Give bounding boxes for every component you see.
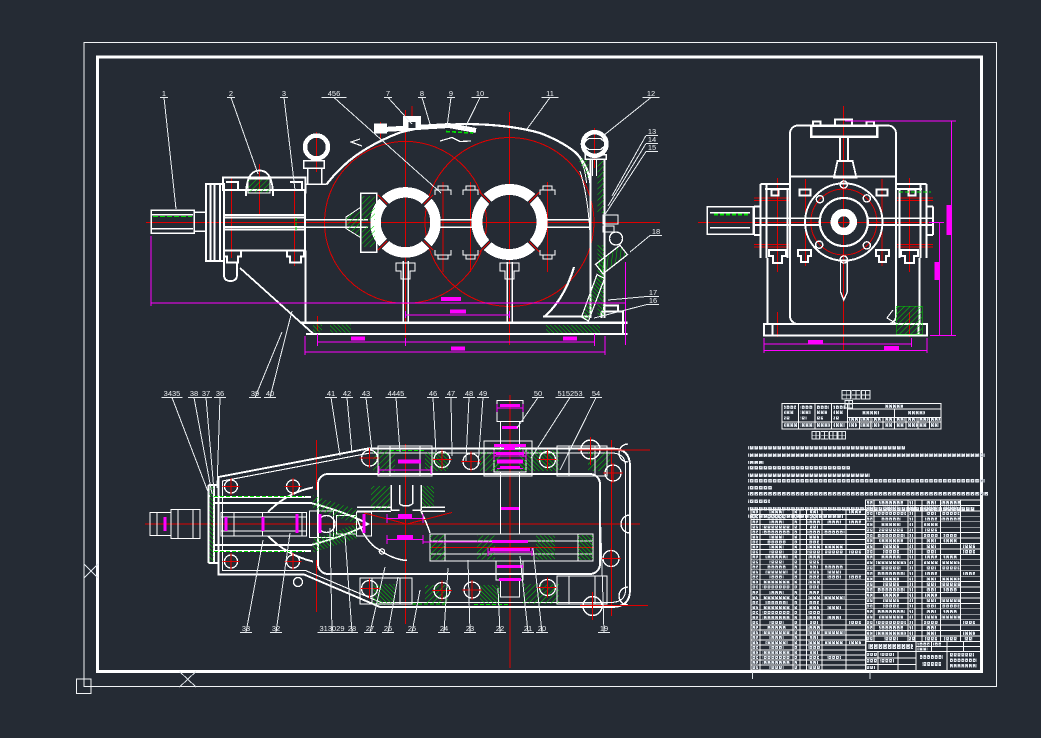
- svg-text:50: 50: [534, 389, 542, 398]
- svg-text:12: 12: [647, 89, 655, 98]
- svg-text:41: 41: [327, 389, 335, 398]
- svg-text:43: 43: [362, 389, 370, 398]
- svg-text:9: 9: [449, 89, 453, 98]
- svg-text:1: 1: [162, 89, 166, 98]
- svg-text:2: 2: [229, 89, 233, 98]
- svg-text:42: 42: [343, 389, 351, 398]
- svg-text:54: 54: [592, 389, 600, 398]
- svg-text:38: 38: [190, 389, 198, 398]
- svg-text:36: 36: [216, 389, 224, 398]
- svg-text:15: 15: [648, 143, 656, 152]
- svg-text:3435: 3435: [164, 389, 181, 398]
- svg-text:47: 47: [447, 389, 455, 398]
- svg-text:49: 49: [479, 389, 487, 398]
- svg-text:515253: 515253: [557, 389, 582, 398]
- svg-text:3: 3: [282, 89, 286, 98]
- svg-text:46: 46: [429, 389, 437, 398]
- svg-text:8: 8: [420, 89, 424, 98]
- svg-text:456: 456: [328, 89, 341, 98]
- svg-text:18: 18: [652, 227, 660, 236]
- svg-text:48: 48: [465, 389, 473, 398]
- svg-text:4445: 4445: [388, 389, 405, 398]
- svg-text:7: 7: [386, 89, 390, 98]
- svg-text:37: 37: [202, 389, 210, 398]
- svg-text:16: 16: [649, 296, 657, 305]
- svg-text:10: 10: [476, 89, 484, 98]
- svg-text:11: 11: [546, 89, 554, 98]
